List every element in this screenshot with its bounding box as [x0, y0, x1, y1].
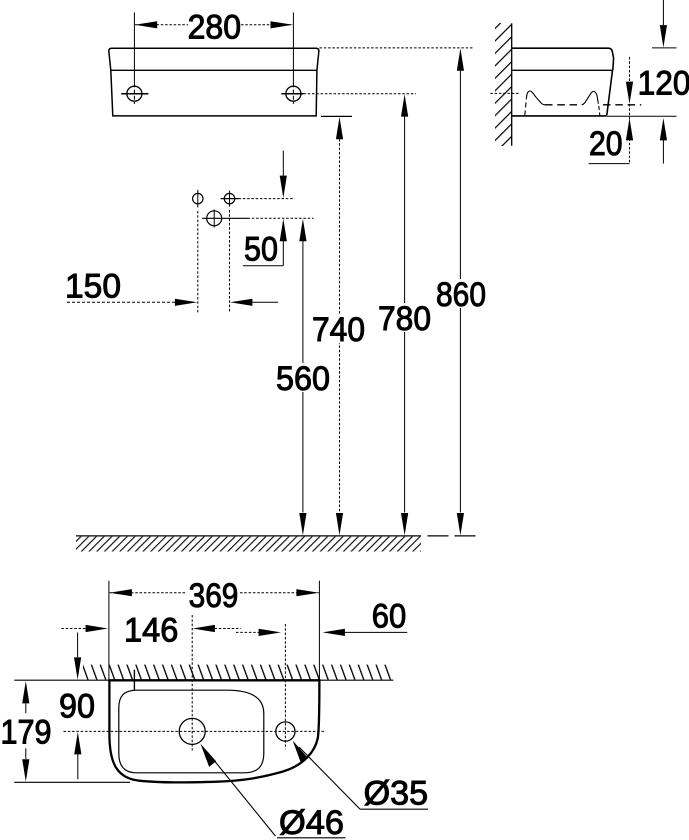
svg-text:280: 280 — [188, 9, 242, 47]
svg-text:369: 369 — [189, 577, 239, 615]
svg-text:60: 60 — [372, 598, 407, 636]
svg-text:120: 120 — [638, 65, 689, 103]
svg-text:Ø46: Ø46 — [279, 804, 344, 840]
svg-text:860: 860 — [436, 276, 486, 314]
svg-text:740: 740 — [312, 311, 365, 349]
svg-text:560: 560 — [276, 360, 330, 398]
svg-text:20: 20 — [589, 125, 623, 163]
svg-text:146: 146 — [124, 612, 178, 650]
svg-text:780: 780 — [378, 300, 431, 338]
svg-text:90: 90 — [59, 688, 95, 726]
svg-text:179: 179 — [1, 714, 52, 752]
svg-text:50: 50 — [244, 231, 278, 269]
svg-text:150: 150 — [65, 267, 121, 305]
svg-text:Ø35: Ø35 — [364, 775, 429, 813]
